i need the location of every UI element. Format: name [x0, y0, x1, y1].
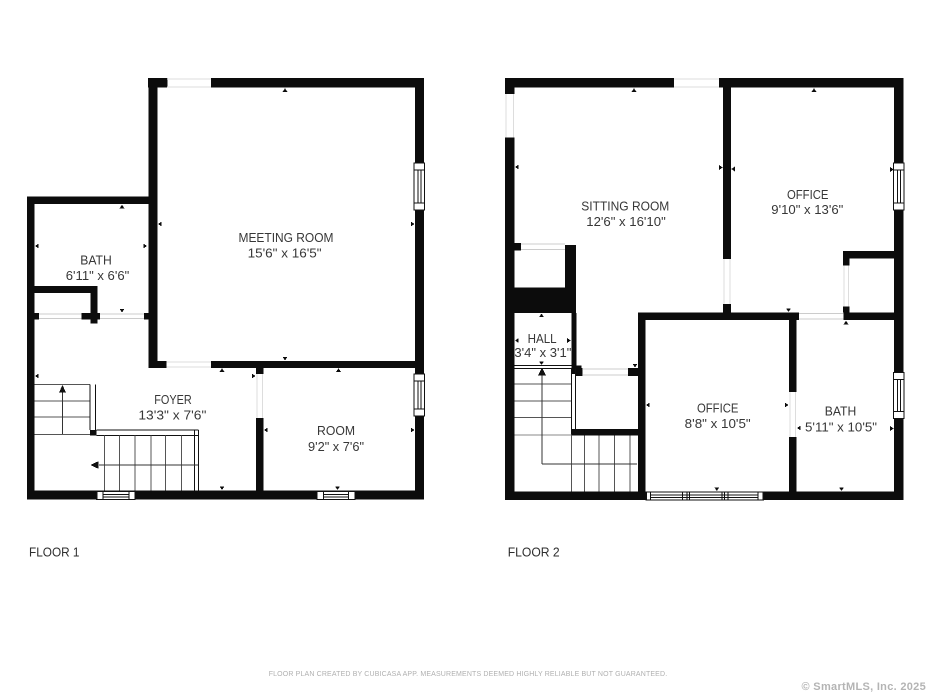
svg-text:OFFICE: OFFICE: [787, 187, 829, 202]
svg-text:8'8" x 10'5": 8'8" x 10'5": [685, 416, 751, 431]
svg-text:9'10" x 13'6": 9'10" x 13'6": [771, 202, 843, 217]
svg-text:FLOOR 2: FLOOR 2: [508, 545, 560, 560]
svg-text:3'4" x 3'1": 3'4" x 3'1": [514, 345, 571, 360]
svg-text:BATH: BATH: [825, 403, 857, 418]
svg-text:SITTING ROOM: SITTING ROOM: [581, 199, 669, 214]
svg-text:12'6" x 16'10": 12'6" x 16'10": [586, 214, 666, 229]
svg-text:OFFICE: OFFICE: [697, 401, 739, 416]
svg-text:MEETING ROOM: MEETING ROOM: [239, 230, 334, 245]
svg-text:6'11" x 6'6": 6'11" x 6'6": [66, 268, 130, 283]
svg-text:FOYER: FOYER: [154, 392, 192, 407]
svg-text:5'11" x 10'5": 5'11" x 10'5": [805, 419, 877, 434]
svg-text:FLOOR 1: FLOOR 1: [29, 545, 80, 560]
svg-text:13'3" x 7'6": 13'3" x 7'6": [138, 408, 206, 423]
svg-text:FLOOR PLAN CREATED BY CUBICASA: FLOOR PLAN CREATED BY CUBICASA APP. MEAS…: [269, 671, 668, 678]
svg-text:© SmartMLS, Inc. 2025: © SmartMLS, Inc. 2025: [802, 681, 926, 693]
svg-text:ROOM: ROOM: [317, 423, 355, 438]
svg-text:15'6" x 16'5": 15'6" x 16'5": [248, 246, 322, 261]
svg-text:9'2" x 7'6": 9'2" x 7'6": [308, 439, 364, 454]
svg-text:HALL: HALL: [528, 331, 557, 346]
svg-text:BATH: BATH: [80, 253, 112, 268]
